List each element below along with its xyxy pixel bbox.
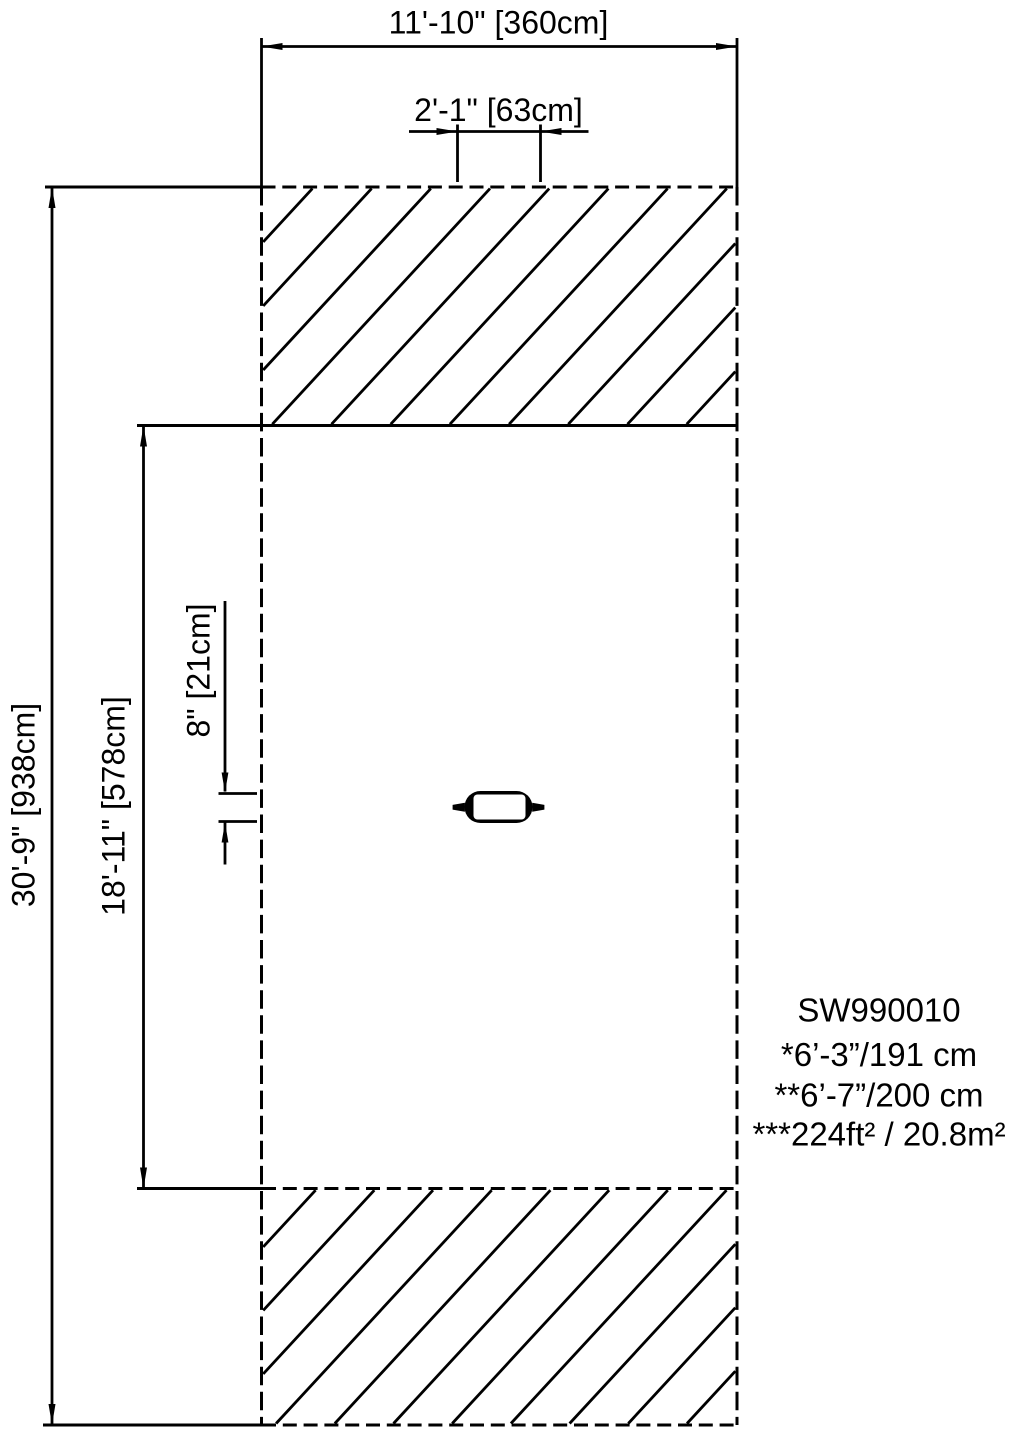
svg-text:SW990010: SW990010	[797, 992, 960, 1029]
svg-text:**6’-7”/200 cm: **6’-7”/200 cm	[774, 1077, 983, 1114]
svg-text:30'-9" [938cm]: 30'-9" [938cm]	[6, 703, 42, 907]
svg-text:2'-1" [63cm]: 2'-1" [63cm]	[414, 92, 583, 128]
svg-text:11'-10" [360cm]: 11'-10" [360cm]	[389, 5, 609, 41]
svg-text:***224ft² / 20.8m²: ***224ft² / 20.8m²	[752, 1116, 1005, 1153]
svg-text:*6’-3”/191 cm: *6’-3”/191 cm	[781, 1036, 977, 1073]
svg-text:8" [21cm]: 8" [21cm]	[181, 603, 217, 737]
svg-text:18'-11" [578cm]: 18'-11" [578cm]	[96, 696, 132, 916]
